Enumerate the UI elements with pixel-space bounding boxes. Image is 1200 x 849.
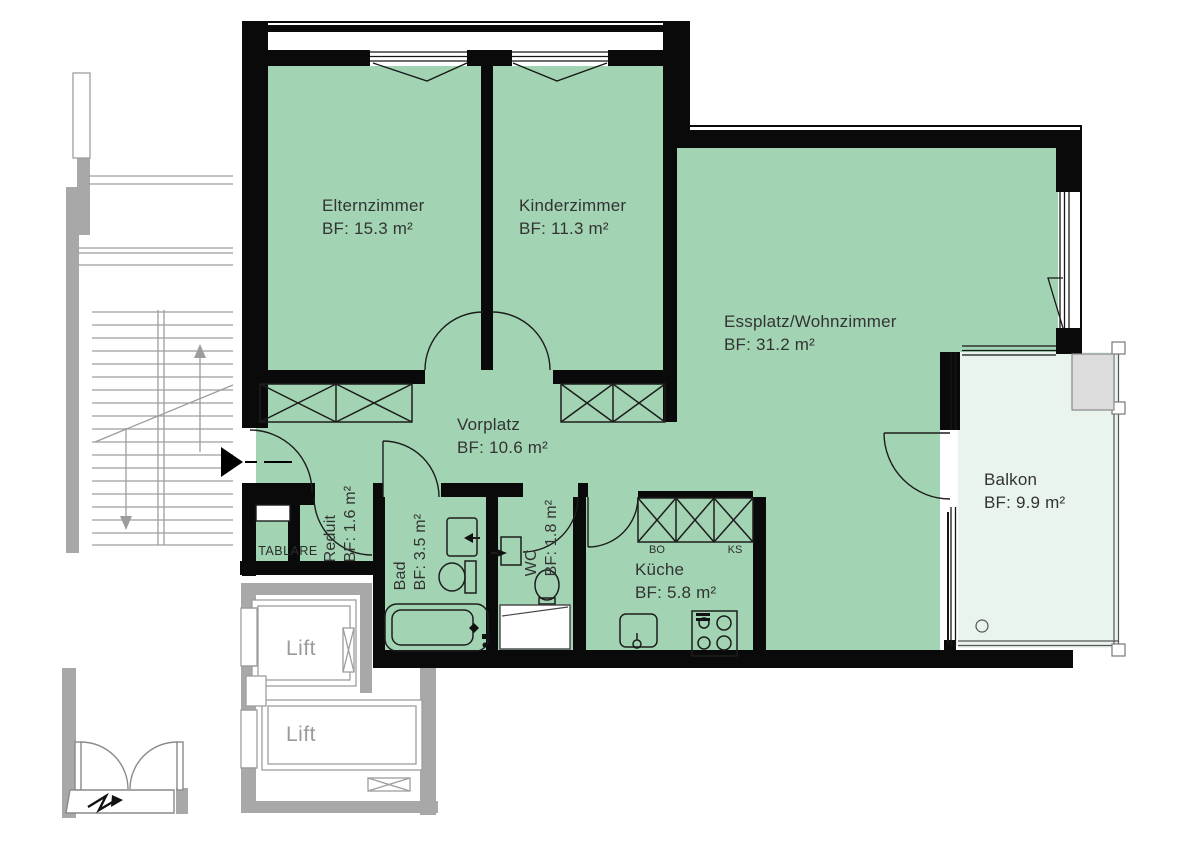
- floorplan-linework: [0, 0, 1200, 849]
- label-kinderzimmer: Kinderzimmer BF: 11.3 m²: [519, 194, 626, 240]
- label-kueche: Küche BF: 5.8 m²: [635, 558, 716, 604]
- room-name: Reduit: [321, 486, 341, 563]
- room-area: BF: 15.3 m²: [322, 217, 425, 240]
- entrance-double-door: [66, 742, 183, 813]
- door-arc-bad: [383, 441, 439, 497]
- lift1-door-gap: [241, 608, 257, 666]
- room-name: Küche: [635, 558, 716, 581]
- label-bo: BO: [649, 544, 665, 556]
- room-name: Vorplatz: [457, 413, 548, 436]
- staircase: [73, 73, 233, 545]
- balcony-drain: [976, 620, 988, 632]
- label-vorplatz: Vorplatz BF: 10.6 m²: [457, 413, 548, 459]
- room-area: BF: 5.8 m²: [635, 581, 716, 604]
- entry-arrow-icon: [221, 447, 243, 477]
- label-lift-1: Lift: [286, 637, 316, 661]
- room-area: BF: 1.8 m²: [542, 500, 562, 577]
- bad-toilet-bowl: [439, 563, 465, 591]
- burner-3: [698, 637, 710, 649]
- bathtub-inner: [392, 610, 473, 645]
- door-arc-elternzimmer: [425, 312, 483, 370]
- label-balkon: Balkon BF: 9.9 m²: [984, 468, 1065, 514]
- room-name: Essplatz/Wohnzimmer: [724, 310, 897, 333]
- stair-down-arrowhead: [120, 516, 132, 530]
- label-lift-2: Lift: [286, 723, 316, 747]
- room-name: Kinderzimmer: [519, 194, 626, 217]
- label-tablare: TABLARE: [258, 544, 318, 558]
- bad-sink-tap: [464, 533, 473, 543]
- door-arc-balkon: [884, 433, 950, 499]
- railing-post-1: [1112, 342, 1125, 354]
- floor-plan: Elternzimmer BF: 15.3 m² Kinderzimmer BF…: [0, 0, 1200, 849]
- window-tilt-kinder: [513, 63, 607, 81]
- room-area: BF: 3.5 m²: [411, 514, 431, 591]
- label-bad: Bad BF: 3.5 m²: [391, 514, 431, 591]
- room-name: Bad: [391, 514, 411, 591]
- door-arc-kueche: [588, 497, 638, 547]
- lift2-door-gap: [241, 710, 257, 768]
- room-area: BF: 31.2 m²: [724, 333, 897, 356]
- balcony-planter: [1072, 354, 1114, 410]
- label-ks: KS: [728, 544, 743, 556]
- wc-sink: [501, 537, 521, 565]
- kueche-fixtures: [620, 611, 737, 656]
- railing-post-3: [1112, 644, 1125, 656]
- wc-sink-tap: [497, 549, 507, 557]
- entry-marker: [221, 447, 292, 477]
- label-reduit: Reduit BF: 1.6 m²: [321, 486, 361, 563]
- window-tilt-wohnzimmer: [1048, 278, 1063, 328]
- window-tilt-eltern: [373, 63, 467, 81]
- label-wc: WC BF: 1.8 m²: [522, 500, 562, 577]
- bathtub-tap: [482, 634, 490, 639]
- windows: [370, 52, 1069, 646]
- stove: [692, 611, 737, 656]
- entrance-door-leaf-right: [177, 742, 183, 790]
- lift-connector: [246, 676, 266, 706]
- entrance-door-arc-right: [130, 742, 177, 789]
- lift-shafts: [241, 600, 422, 791]
- room-name: Elternzimmer: [322, 194, 425, 217]
- kitchen-sink: [620, 614, 657, 647]
- room-area: BF: 9.9 m²: [984, 491, 1065, 514]
- tablare-shelf: [256, 505, 290, 521]
- label-wohnzimmer: Essplatz/Wohnzimmer BF: 31.2 m²: [724, 310, 897, 356]
- bathtub-drain: [469, 623, 479, 633]
- burner-2: [717, 616, 731, 630]
- door-arc-kinderzimmer: [492, 312, 550, 370]
- room-area: BF: 11.3 m²: [519, 217, 626, 240]
- stair-wall-cap: [73, 73, 90, 158]
- room-area: BF: 1.6 m²: [341, 486, 361, 563]
- room-area: BF: 10.6 m²: [457, 436, 548, 459]
- room-name: Balkon: [984, 468, 1065, 491]
- label-elternzimmer: Elternzimmer BF: 15.3 m²: [322, 194, 425, 240]
- entrance-door-arc-left: [81, 742, 128, 789]
- entrance-door-leaf-left: [75, 742, 81, 790]
- room-name: WC: [522, 500, 542, 577]
- bad-toilet-cistern: [465, 561, 476, 593]
- burner-4: [717, 636, 731, 650]
